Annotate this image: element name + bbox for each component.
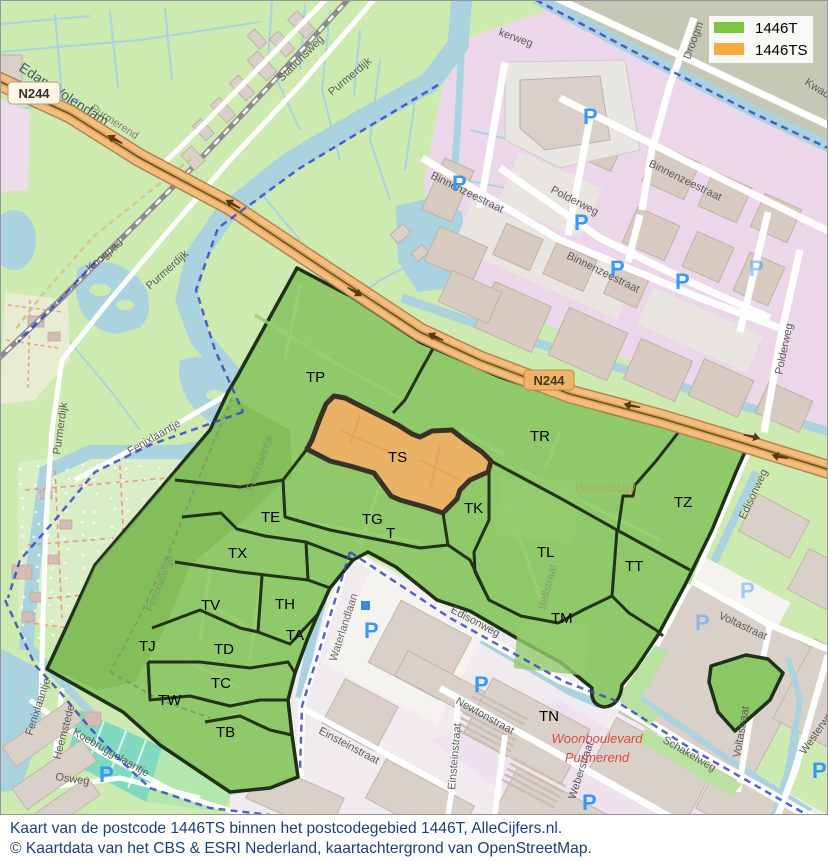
svg-text:Kaart van de postcode 1446TS b: Kaart van de postcode 1446TS binnen het … [10, 820, 562, 837]
svg-text:TJ: TJ [139, 638, 156, 655]
svg-text:Purmerend: Purmerend [565, 750, 630, 765]
svg-text:TL: TL [537, 544, 555, 561]
svg-text:TS: TS [388, 449, 407, 466]
svg-text:TA: TA [286, 627, 304, 644]
svg-text:P: P [610, 256, 625, 281]
svg-text:TR: TR [530, 428, 550, 445]
svg-text:TP: TP [306, 369, 325, 386]
svg-text:N244: N244 [533, 373, 565, 388]
svg-text:TD: TD [214, 641, 234, 658]
svg-text:TW: TW [158, 692, 182, 709]
svg-text:P: P [364, 618, 379, 643]
svg-text:P: P [99, 762, 114, 787]
svg-text:TV: TV [201, 597, 220, 614]
svg-text:Woonboulevard: Woonboulevard [551, 731, 643, 746]
svg-text:P: P [452, 171, 467, 196]
svg-text:BoonStay: BoonStay [575, 479, 636, 495]
svg-text:TH: TH [275, 596, 295, 613]
svg-text:P: P [574, 210, 589, 235]
svg-text:P: P [583, 104, 598, 129]
svg-text:T: T [386, 525, 395, 542]
svg-text:TB: TB [216, 724, 235, 741]
svg-text:P: P [749, 256, 764, 281]
svg-text:TC: TC [211, 675, 231, 692]
svg-text:P: P [695, 610, 710, 635]
svg-text:TN: TN [539, 708, 559, 725]
svg-text:1446TS: 1446TS [755, 42, 808, 59]
svg-text:TG: TG [362, 511, 383, 528]
svg-text:1446T: 1446T [755, 20, 798, 37]
svg-text:TE: TE [261, 509, 280, 526]
svg-text:TX: TX [228, 545, 247, 562]
svg-text:TM: TM [551, 610, 573, 627]
svg-text:TK: TK [464, 500, 483, 517]
svg-text:P: P [740, 578, 755, 603]
svg-text:TT: TT [625, 558, 643, 575]
svg-text:© Kaartdata van het CBS & ESRI: © Kaartdata van het CBS & ESRI Nederland… [10, 840, 592, 857]
svg-text:N244: N244 [18, 86, 50, 101]
svg-text:P: P [675, 269, 690, 294]
svg-text:P: P [582, 790, 597, 815]
svg-text:P: P [474, 672, 489, 697]
svg-text:TZ: TZ [674, 494, 692, 511]
svg-text:P: P [812, 758, 827, 783]
